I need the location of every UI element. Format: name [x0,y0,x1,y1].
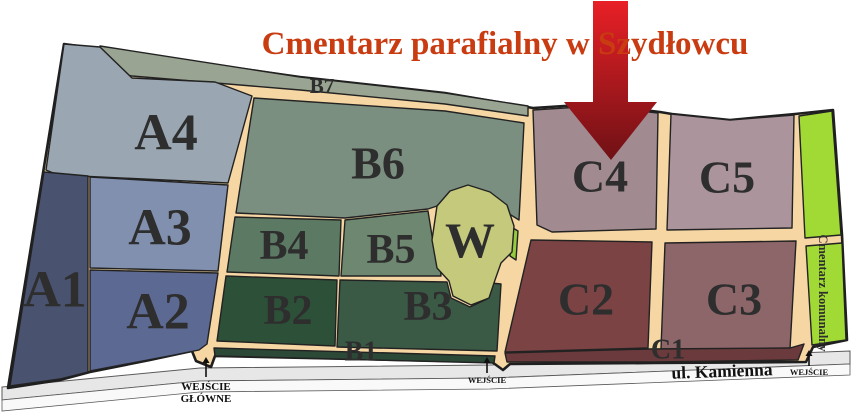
label-a1: A1 [23,262,87,319]
label-b4: B4 [259,223,308,269]
middle-entrance-label: WEJŚCIE [468,375,507,385]
main-entrance-label: WEJŚCIE [181,381,231,393]
label-b1: B1 [345,337,378,368]
label-a4: A4 [134,105,198,162]
label-w: W [445,212,495,268]
label-b6: B6 [351,138,405,189]
right-entrance-label: WEJŚCIE [790,367,829,377]
road-label: ul. Kamienna [671,359,773,383]
main-entrance: WEJŚCIEGŁÓWNE [181,357,232,405]
label-c2: C2 [558,274,614,325]
page-title: Cmentarz parafialny w Szydłowcu [200,26,810,63]
label-c3: C3 [706,274,762,325]
label-c5: C5 [699,152,755,203]
label-b3: B3 [403,284,452,330]
label-c1: C1 [651,335,685,366]
label-a3: A3 [128,200,192,257]
label-c4: C4 [572,151,628,202]
cemetery-map-page: A4A3A2A1B6B7B4B5B2B3WB1C4C5C2C3C1Cmentar… [0,0,852,412]
label-b5: B5 [366,227,415,273]
label-a2: A2 [126,284,190,341]
main-entrance-label: GŁÓWNE [181,393,232,405]
label-b7: B7 [310,74,335,98]
label-communal: Cmentarz komunalny [816,234,830,352]
label-b2: B2 [263,288,312,334]
